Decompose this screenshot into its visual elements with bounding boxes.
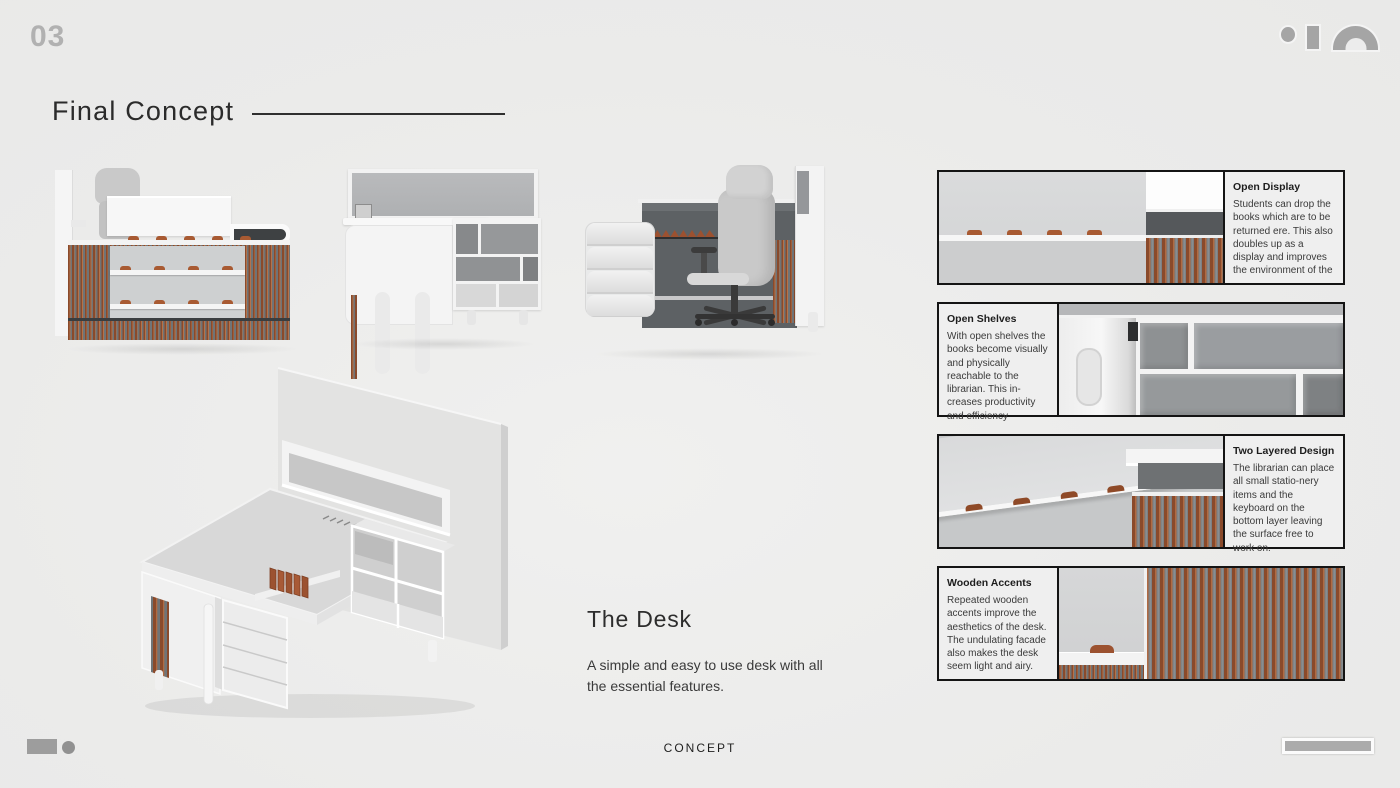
book-stop (1047, 230, 1062, 235)
logo-bar-icon (1307, 26, 1319, 49)
dark-notch (1128, 322, 1138, 341)
presentation-slide: 03 Final Concept (0, 0, 1400, 788)
shelf-bracket (71, 220, 86, 227)
wood-slats (1146, 235, 1223, 283)
feature-image-open-shelves (1059, 304, 1343, 415)
panel-window (797, 171, 809, 214)
render-desk-front-view (55, 168, 310, 348)
shelf-ledge (1059, 652, 1144, 664)
feature-title: Open Shelves (947, 313, 1049, 325)
book-stop (1087, 230, 1102, 235)
white-panel (1146, 172, 1223, 209)
book-stop (222, 266, 233, 270)
book-stop (120, 266, 131, 270)
book-stop (184, 236, 195, 240)
book-stop (1007, 230, 1022, 235)
display-panel (107, 196, 231, 236)
title-rule (252, 113, 505, 115)
side-section (1146, 172, 1223, 283)
book-stop (156, 236, 167, 240)
book-stop (965, 504, 983, 512)
lower-surface (939, 241, 1146, 283)
feature-text-open-shelves: Open Shelves With open shelves the books… (939, 304, 1059, 415)
book-stop (154, 266, 165, 270)
feature-card-wooden-accents: Wooden Accents Repeated wooden accents i… (937, 566, 1345, 681)
feature-title: Two Layered Design (1233, 445, 1335, 457)
book-stop (154, 300, 165, 304)
feature-title: Wooden Accents (947, 577, 1049, 589)
drawer (587, 295, 653, 317)
book-stop (120, 300, 131, 304)
title-row: Final Concept (52, 96, 505, 127)
shelf (110, 270, 245, 275)
wood-slats (773, 240, 795, 323)
chair-headrest (726, 165, 773, 199)
leg (519, 310, 528, 325)
top-band (1059, 304, 1343, 318)
back-panel-inner (352, 173, 534, 216)
shelf-cell (1194, 323, 1343, 370)
book-stop (128, 236, 139, 240)
feature-title: Open Display (1233, 181, 1335, 193)
drawer (587, 223, 653, 246)
page-number: 03 (30, 20, 65, 54)
book-stop (222, 300, 233, 304)
feature-card-open-shelves: Open Shelves With open shelves the books… (937, 302, 1345, 417)
logo-dot-icon (1281, 27, 1295, 42)
render-desk-isometric (125, 356, 565, 721)
book-stop (1107, 485, 1125, 493)
desk-text-block: The Desk A simple and easy to use desk w… (587, 606, 887, 697)
wood-slats (1144, 568, 1343, 679)
shelf-cell (1140, 323, 1188, 370)
book-stop (1060, 492, 1078, 500)
feature-image-wooden-accents (1059, 568, 1343, 679)
shelf-cell (456, 224, 478, 254)
footer-bar-icon (1282, 738, 1374, 754)
desk-description: A simple and easy to use desk with all t… (587, 655, 837, 697)
drawer-front (456, 284, 496, 307)
page-title: Final Concept (52, 96, 234, 127)
pill-handle (1076, 348, 1102, 406)
feature-text-open-display: Open Display Students can drop the books… (1223, 172, 1343, 283)
feature-body: With open shelves the books become visua… (947, 330, 1049, 423)
render-desk-side-view (583, 163, 835, 353)
book-stop (212, 236, 223, 240)
book-stop (188, 266, 199, 270)
shelf-cell (1303, 374, 1343, 415)
wood-slats (1132, 492, 1223, 548)
footer-dot-icon (62, 741, 75, 754)
chair-base (695, 309, 775, 325)
book-stop (1090, 645, 1114, 653)
feature-body: Students can drop the books which are to… (1233, 198, 1335, 278)
shelf-unit (453, 218, 541, 325)
logo-arch-icon (1333, 26, 1378, 50)
feature-body: The librarian can place all small statio… (1233, 462, 1335, 555)
shelf-cell (481, 224, 538, 254)
mini-slats (1059, 665, 1144, 679)
book-stop (967, 230, 982, 235)
shelf-cell (523, 257, 538, 281)
chair-backrest (718, 189, 775, 286)
drawer (587, 271, 653, 294)
counter-lip (68, 240, 290, 245)
shelf-cell (1140, 374, 1296, 415)
brand-logo-icon (1276, 0, 1386, 60)
footer-rectangle-icon (27, 739, 57, 754)
feature-body: Repeated wooden accents improve the aest… (947, 594, 1049, 674)
chair-armpost (701, 253, 707, 275)
upper-shelf (1126, 449, 1223, 462)
shelf-cell (456, 257, 520, 281)
panel-leg (808, 312, 818, 332)
book-stop (1013, 498, 1031, 506)
feature-text-two-layered: Two Layered Design The librarian can pla… (1223, 436, 1343, 547)
feature-image-two-layered (939, 436, 1223, 547)
leg (467, 310, 476, 325)
footer-section-label: CONCEPT (664, 741, 737, 755)
drawer (587, 247, 653, 270)
dark-band (1146, 209, 1223, 236)
feature-image-open-display (939, 172, 1223, 283)
book-stop (188, 300, 199, 304)
book-stop (240, 236, 251, 240)
feature-card-open-display: Open Display Students can drop the books… (937, 170, 1345, 285)
shelf-shadow (1138, 463, 1223, 490)
desk-heading: The Desk (587, 606, 887, 633)
feature-text-wooden-accents: Wooden Accents Repeated wooden accents i… (939, 568, 1059, 679)
shelf-niche (110, 246, 245, 318)
render-desk-rear-view (343, 168, 545, 343)
feature-card-two-layered: Two Layered Design The librarian can pla… (937, 434, 1345, 549)
chair-seat (687, 273, 749, 285)
shelf (110, 304, 245, 309)
desk-body (345, 225, 453, 325)
drawer-unit (585, 222, 655, 317)
counter-shadow-line (68, 318, 290, 321)
feature-panels: Open Display Students can drop the books… (937, 170, 1345, 698)
slatted-body (68, 244, 290, 340)
drawer-front (499, 284, 538, 307)
